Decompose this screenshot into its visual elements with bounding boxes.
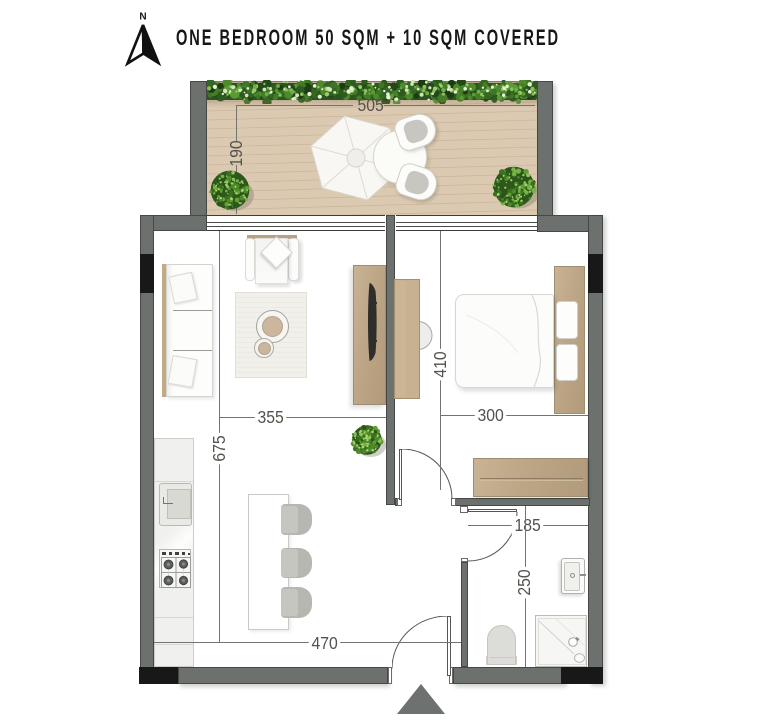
svg-text:N: N: [139, 12, 146, 23]
